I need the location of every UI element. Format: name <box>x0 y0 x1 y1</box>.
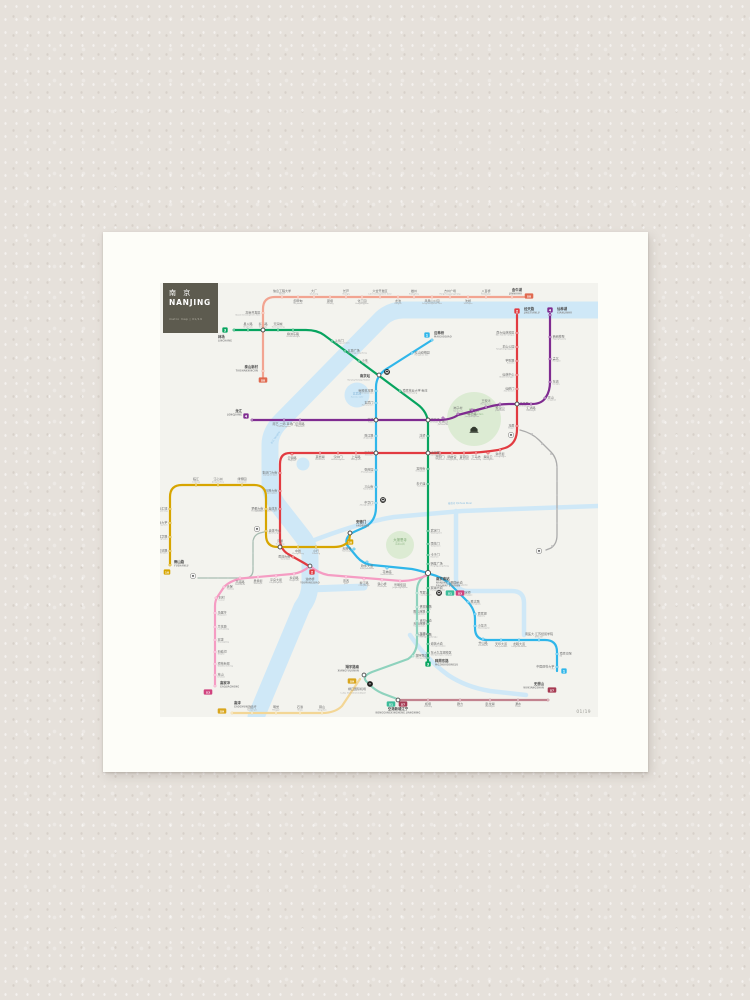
map-label: 新模范马路 <box>358 387 373 392</box>
interchange-station <box>308 564 312 568</box>
map-label: 南京站 <box>360 373 371 378</box>
line-badge-S3: S3 <box>204 689 213 694</box>
station-dot <box>431 339 433 341</box>
station-dot <box>195 484 197 486</box>
map-label: Yunjinlu <box>288 460 296 462</box>
map-label: Jubaoshan <box>494 410 506 412</box>
station-dot <box>169 550 171 552</box>
map-label: XIANLINHU <box>557 312 572 315</box>
map-label: 浮桥 <box>419 432 425 437</box>
station-dot <box>265 508 267 510</box>
tram-transfer-icon: H <box>191 574 195 578</box>
station-dot <box>416 606 418 608</box>
map-label: Mochouhu <box>315 459 326 461</box>
map-label: Changfujie <box>415 471 426 473</box>
map-label: 学则路 <box>505 357 514 362</box>
map-label: Nanjing Tech <box>160 525 168 527</box>
map-label: Wolonghu <box>485 706 495 708</box>
airport-icon: ✈ <box>367 681 373 687</box>
map-label: Xi'anmen <box>436 459 446 461</box>
station-dot <box>397 296 399 298</box>
line-badge-S9: S9 <box>348 678 357 683</box>
station-dot <box>358 360 360 362</box>
station-dot <box>214 663 216 665</box>
map-label: Pingliangdajie <box>269 582 283 584</box>
station-dot <box>416 620 418 622</box>
interchange-station <box>278 545 282 549</box>
station-dot <box>297 546 299 548</box>
map-label: Mingjue <box>272 709 280 711</box>
line-badge-S9: S9 <box>218 708 227 713</box>
map-label: 大报恩寺 <box>393 537 407 542</box>
map-label: YOUFANGQIAO <box>299 582 320 585</box>
map-label: 南京交院 <box>560 650 572 655</box>
map-label: Pukouwanhuicheng <box>160 511 168 513</box>
station-dot <box>412 655 414 657</box>
station-dot <box>355 452 357 454</box>
map-label: Hongshan Zoo <box>415 355 430 357</box>
station-dot <box>279 472 281 474</box>
station-dot <box>241 484 243 486</box>
map-label: 五塘广场 <box>348 347 360 352</box>
railway-station-icon <box>384 369 390 375</box>
station-dot <box>489 699 491 701</box>
map-label: 天保 <box>227 583 233 588</box>
river <box>310 587 364 589</box>
map-label: Huitonglu <box>526 409 536 412</box>
map-label: 龙江 <box>234 408 242 413</box>
map-label: Shengtailu <box>471 603 482 606</box>
map-label: Jiaxi <box>343 583 348 585</box>
map-label: 红山动物园 <box>415 349 430 354</box>
map-label: 羊山公园 <box>502 343 514 348</box>
map-label: Longchi <box>394 303 402 305</box>
map-label: Tianyindadao <box>495 646 509 648</box>
map-label: 奥体东 <box>268 505 277 510</box>
map-label: 梦都大街 <box>251 505 263 510</box>
map-label: Tianyuanxilu <box>413 626 426 628</box>
station-dot <box>467 296 469 298</box>
line-badge-2: 2 <box>309 569 314 574</box>
page: { "scene": {"wall": "#e6e1db", "print": … <box>0 0 750 1000</box>
map-label: Lishui <box>515 706 521 708</box>
map-label: 仙林湖 <box>557 306 568 311</box>
map-label: 石碛河 <box>218 648 227 653</box>
map-label: Minggugong <box>446 459 459 461</box>
map-label: Zhengfangzhonglu <box>420 637 439 639</box>
map-label: Shiqihe <box>218 654 226 656</box>
map-label: 兴隆大街 <box>265 487 277 492</box>
map-label: Baijiahu <box>478 616 486 618</box>
station-dot <box>233 329 235 331</box>
map-label: 刘村 <box>219 594 225 599</box>
map-label: GAOCHUN <box>234 706 247 709</box>
station-dot <box>474 613 476 615</box>
station-dot <box>293 573 295 575</box>
station-dot <box>451 452 453 454</box>
station-dot <box>413 296 415 298</box>
map-label: Xiaoxing <box>312 553 321 555</box>
tram-transfer-icon: H <box>509 433 513 437</box>
map-label: 秣周东路 <box>435 658 449 663</box>
station-dot <box>431 296 433 298</box>
line-badge-3: 3 <box>425 661 430 666</box>
map-label: Xinghuolu <box>243 326 253 328</box>
map-label: Shangyuanmen <box>335 343 351 345</box>
map-label: 林山 <box>218 671 224 676</box>
station-dot <box>275 575 277 577</box>
map-label: Tianbao <box>227 589 235 591</box>
station-dot <box>375 390 377 392</box>
line-badge-4: 4 <box>547 307 552 312</box>
station-dot <box>549 336 551 338</box>
map-label: Qiaolinxincheng <box>218 666 234 668</box>
map-label: 明发广场 <box>431 560 443 565</box>
map-label: Mengdudajie <box>251 511 264 513</box>
interchange-station <box>374 451 378 455</box>
line-badge-2: 2 <box>514 308 519 313</box>
map-label: Caochangmen <box>277 426 291 428</box>
station-dot <box>442 417 444 419</box>
line-badge-10: 10 <box>164 569 171 574</box>
station-dot <box>251 712 253 714</box>
railway-station-icon <box>380 497 386 503</box>
station-dot <box>214 626 216 628</box>
map-label: Sanshanjie <box>363 489 374 491</box>
map-label: Mengbei <box>553 361 562 363</box>
map-label: Qunli <box>458 706 463 708</box>
station-dot <box>292 556 294 558</box>
map-label: Ruanjiandadao <box>360 568 375 570</box>
line-badge-S8: S8 <box>525 293 534 298</box>
svg-text:S1: S1 <box>389 702 393 706</box>
map-label: Gulou <box>368 422 374 424</box>
station-dot <box>169 508 171 510</box>
map-label: Zhushanlu <box>478 645 489 647</box>
map-label: Zhetang <box>424 705 433 708</box>
map-label: NMU·JSIT <box>535 636 544 638</box>
map-label: 百家湖 <box>478 610 487 615</box>
station-dot <box>283 419 285 421</box>
map-label: 金牛湖 <box>511 287 523 292</box>
station-dot <box>427 563 429 565</box>
tram-transfer-icon: H <box>537 549 541 553</box>
map-label: 翔宇路北 <box>416 652 428 657</box>
station-dot <box>214 674 216 676</box>
station-dot <box>538 639 540 641</box>
map-label: Xiejiadian <box>293 303 303 305</box>
station-dot <box>427 468 429 470</box>
map-label: 油坊桥 <box>305 576 314 581</box>
map-label: 小龙湾 <box>478 622 487 627</box>
station-dot <box>427 543 429 545</box>
map-label: Zhujianglu <box>363 438 374 440</box>
map-label: Jiangwangmiao <box>464 416 480 418</box>
map-label: Linshan <box>218 677 226 679</box>
map-label: Xianlinzhongxin <box>499 377 515 379</box>
map-label: 文德路 <box>160 547 167 552</box>
station-dot <box>279 490 281 492</box>
map-label: Cuipingshan <box>420 595 433 597</box>
metro-map: 玄武湖Xuanwu Lake长江 Yangtze秦淮河 Qinhuai Rive… <box>160 283 598 717</box>
map-label: LINCHANG <box>218 340 232 343</box>
station-dot <box>275 712 277 714</box>
interchange-station <box>348 531 352 535</box>
station-dot <box>485 406 487 408</box>
park-area: 大报恩寺遗址公园 <box>386 531 414 559</box>
map-label: TAISHANXINCUN <box>236 370 258 373</box>
map-label: 禄口国际机场 <box>348 686 366 691</box>
svg-text:S9: S9 <box>220 709 224 713</box>
line-badge-1: 1 <box>561 668 566 673</box>
map-label: NJU Xianlin Campus <box>496 335 515 337</box>
station-dot <box>321 712 323 714</box>
station-dot <box>215 597 217 599</box>
line-badge-4: 4 <box>243 413 248 418</box>
map-label: 孟北 <box>553 355 559 360</box>
map-label: Tiexinqiao <box>377 586 387 588</box>
map-label: RAILWAY STATION <box>436 584 460 587</box>
station-dot <box>331 340 333 342</box>
map-label: Mingfaguangchang <box>431 566 450 568</box>
map-label: Shanghailu <box>351 459 362 461</box>
map-label: Lingshan <box>548 400 557 402</box>
station-dot <box>381 579 383 581</box>
map-label: WUXIANGSHAN <box>523 687 544 690</box>
map-label: Chunjianglu <box>358 585 370 587</box>
map-label: Babaiqiao <box>481 293 491 295</box>
station-dot <box>292 329 294 331</box>
station-dot <box>482 638 484 640</box>
station-dot <box>467 601 469 603</box>
map-label: 正方中路 <box>420 631 432 636</box>
map-label: Tianlongsi <box>342 551 352 553</box>
station-dot <box>345 296 347 298</box>
lake <box>297 458 310 471</box>
map-label: 仙鹤门 <box>505 385 514 390</box>
map-label: Gaoxin Development Zone <box>235 314 261 317</box>
map-label: Zhangfuyuan <box>361 472 374 474</box>
station-dot <box>214 612 216 614</box>
map-title-caption: metro map | 01/19 <box>169 317 218 321</box>
map-label: Wangjiawan <box>480 403 492 405</box>
map-label: 马群 <box>508 422 514 427</box>
map-label: 高淳 <box>234 700 241 705</box>
svg-text:S7: S7 <box>401 702 405 706</box>
map-label: 南大仙林校区 <box>496 329 514 334</box>
station-dot <box>169 522 171 524</box>
map-label: 马骡圩 <box>218 609 227 614</box>
line-badge-S1: S1 <box>387 701 396 706</box>
svg-text:S9: S9 <box>350 679 354 683</box>
map-label: Xinjiekou <box>365 455 374 457</box>
svg-text:S7: S7 <box>550 688 554 692</box>
map-label: Huashenmiao <box>380 574 394 576</box>
map-label: Hanzhongmen <box>331 459 346 461</box>
map-label: MOZHOUDONGLU <box>435 664 458 667</box>
station-dot <box>214 685 216 687</box>
map-label: Shijiu <box>297 709 303 711</box>
station-dot <box>427 530 429 532</box>
station-dot <box>516 332 518 334</box>
map-label: 东大九龙湖校区 <box>431 649 452 654</box>
station-dot <box>169 564 171 566</box>
map-label: XIANGYULUNAN <box>338 670 359 673</box>
map-label: Changlu <box>342 293 351 295</box>
map-label: 无想山 <box>533 681 545 686</box>
station-dot <box>279 508 281 510</box>
map-label: Maqun <box>508 428 515 430</box>
station-dot <box>487 452 489 454</box>
map-label: Jiqingmendajie <box>262 475 278 477</box>
map-label: Xianhemen <box>504 391 516 393</box>
map-label: 浦口万汇城 <box>160 505 167 510</box>
map-label: Yangshangongyuan <box>496 349 515 351</box>
station-dot <box>517 699 519 701</box>
svg-text:S8: S8 <box>261 378 265 382</box>
map-label: Tianruncheng <box>272 325 286 328</box>
map-label: Gaomiaolu <box>235 584 246 586</box>
station-dot <box>556 653 558 655</box>
station-dot <box>361 296 363 298</box>
map-label: 遗址公园 <box>395 541 405 545</box>
station-dot <box>499 403 501 405</box>
map-label: NJI <box>560 656 563 658</box>
map-label: Gangzicun <box>453 410 464 412</box>
map-label: Xuezelu <box>507 363 515 365</box>
map-label: Fangzhouguangchang <box>440 293 462 295</box>
station-dot <box>549 381 551 383</box>
line-badge-S3: S3 <box>456 590 465 595</box>
map-label: 小市 <box>362 357 368 362</box>
map-label: JINNIUHU <box>508 293 522 296</box>
station-dot <box>297 296 299 298</box>
map-label: Linjiang <box>192 481 200 483</box>
map-label: 三山街 <box>364 483 373 488</box>
interchange-station <box>377 373 381 377</box>
map-label: 玄武门 <box>364 399 373 404</box>
station-dot <box>427 483 429 485</box>
map-label: Lvboyuan <box>237 481 247 483</box>
station-dot <box>530 403 532 405</box>
svg-text:10: 10 <box>348 540 352 544</box>
station-dot <box>262 312 264 314</box>
map-label: 中华门 <box>364 499 373 504</box>
map-label: Huagongyuan <box>355 303 369 305</box>
station-dot <box>457 413 459 415</box>
map-label: Wudingmen <box>431 533 443 535</box>
map-label: GAOJIACHONG <box>220 686 239 689</box>
map-label: 张府园 <box>364 466 373 471</box>
map-label: Yunnanlu <box>296 426 305 428</box>
station-dot <box>459 699 461 701</box>
map-label: 常府街 <box>416 465 425 470</box>
station-dot <box>375 435 377 437</box>
station-dot <box>375 502 377 504</box>
station-dot <box>516 425 518 427</box>
map-label: Zhongsheng <box>292 553 305 555</box>
map-label: 夫子庙 <box>416 480 425 485</box>
map-title-english: NANJING <box>169 298 218 308</box>
station-dot <box>427 611 429 613</box>
station-dot <box>518 639 520 641</box>
map-label: 桥林新城 <box>218 660 230 665</box>
station-dot <box>214 651 216 653</box>
station-dot <box>516 374 518 376</box>
map-label: 佛城西路 <box>420 603 432 608</box>
map-label: Liucun <box>219 600 226 602</box>
map-label: 奥体中心 <box>269 527 281 532</box>
station-dot <box>262 370 264 372</box>
map-label: Zhonglingjie <box>494 456 507 458</box>
map-label: Yongchulu <box>289 580 299 582</box>
map-label: Muxuyuan <box>459 459 470 461</box>
map-label: 灵山 <box>548 394 554 399</box>
map-label: 诚信大道 <box>431 640 443 645</box>
map-label: 经天路 <box>524 306 535 311</box>
svg-text:S1: S1 <box>448 591 452 595</box>
map-label: Nanjing Railway Station <box>348 379 371 382</box>
map-label: 高家冲 <box>220 680 231 685</box>
map-label: Jiangxinzhou <box>211 481 225 483</box>
station-dot <box>329 296 331 298</box>
station-dot <box>416 592 418 594</box>
wall-background: 玄武湖Xuanwu Lake长江 Yangtze秦淮河 Qinhuai Rive… <box>0 0 750 1000</box>
station-dot <box>247 329 249 331</box>
station-dot <box>214 639 216 641</box>
station-dot <box>516 346 518 348</box>
interchange-station <box>362 673 366 677</box>
map-label: Lukou International Airport <box>341 692 367 695</box>
station-dot <box>500 639 502 641</box>
map-label: Tongshan <box>318 709 328 711</box>
map-label: 龙华路 <box>160 533 167 538</box>
map-label: Kazimen <box>431 557 440 559</box>
map-label: 南京南站 <box>436 576 450 581</box>
map-label: 迈皋桥 <box>434 330 445 335</box>
station-dot <box>547 699 549 701</box>
map-label: Shuanglong <box>218 642 230 644</box>
park-area: 紫金山Purple Mountain <box>447 392 501 446</box>
station-dot <box>485 296 487 298</box>
station-dot <box>427 643 429 645</box>
station-dot <box>475 452 477 454</box>
map-label: Yuhuamen <box>431 546 442 548</box>
map-label: 武定门 <box>431 527 440 532</box>
map-label: Dongliu <box>553 384 561 386</box>
station-dot <box>427 699 429 701</box>
station-dot <box>353 548 355 550</box>
station-dot <box>319 452 321 454</box>
map-label: 胜太路 <box>471 598 480 603</box>
interchange-station <box>261 328 265 332</box>
station-dot <box>549 358 551 360</box>
line-badge-S7: S7 <box>399 701 408 706</box>
map-label: Longmiandadao <box>511 646 527 648</box>
station-dot <box>239 577 241 579</box>
map-label: 兰花塘 <box>218 623 227 628</box>
station-dot <box>474 625 476 627</box>
station-dot <box>449 296 451 298</box>
interchange-station <box>374 418 378 422</box>
map-label: NUIST <box>279 293 286 295</box>
map-label: 中国药科大学 <box>536 663 554 668</box>
line-badge-S8: S8 <box>259 377 268 382</box>
station-dot <box>427 554 429 556</box>
station-dot <box>471 409 473 411</box>
map-label: 高新开发区 <box>245 309 260 314</box>
map-label: 雨润大街 <box>278 553 290 558</box>
